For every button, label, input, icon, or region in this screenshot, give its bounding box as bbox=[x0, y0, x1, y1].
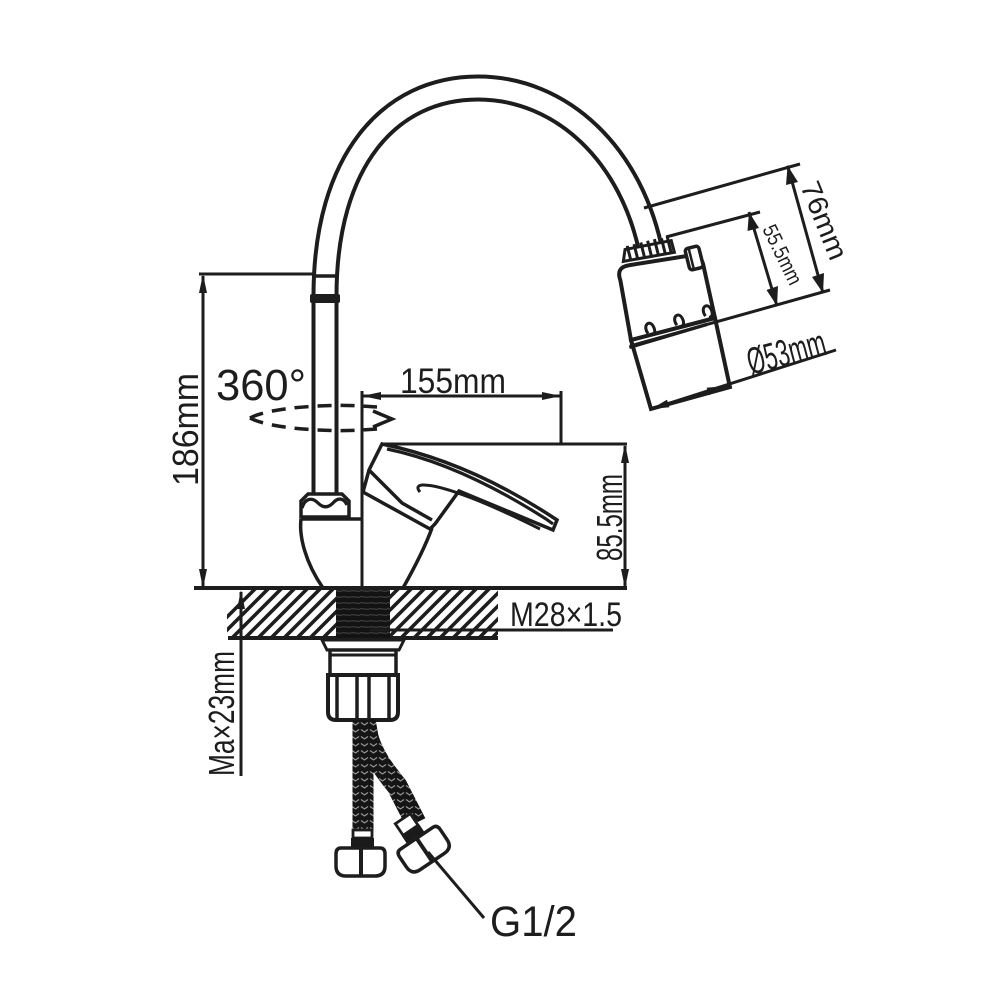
svg-text:Ma×23mm: Ma×23mm bbox=[201, 651, 242, 776]
svg-text:155mm: 155mm bbox=[400, 362, 506, 401]
svg-text:186mm: 186mm bbox=[165, 373, 206, 486]
svg-text:M28×1.5: M28×1.5 bbox=[510, 596, 622, 634]
svg-text:360°: 360° bbox=[216, 361, 306, 410]
svg-text:85.5mm: 85.5mm bbox=[589, 474, 630, 561]
svg-text:G1/2: G1/2 bbox=[490, 898, 577, 946]
